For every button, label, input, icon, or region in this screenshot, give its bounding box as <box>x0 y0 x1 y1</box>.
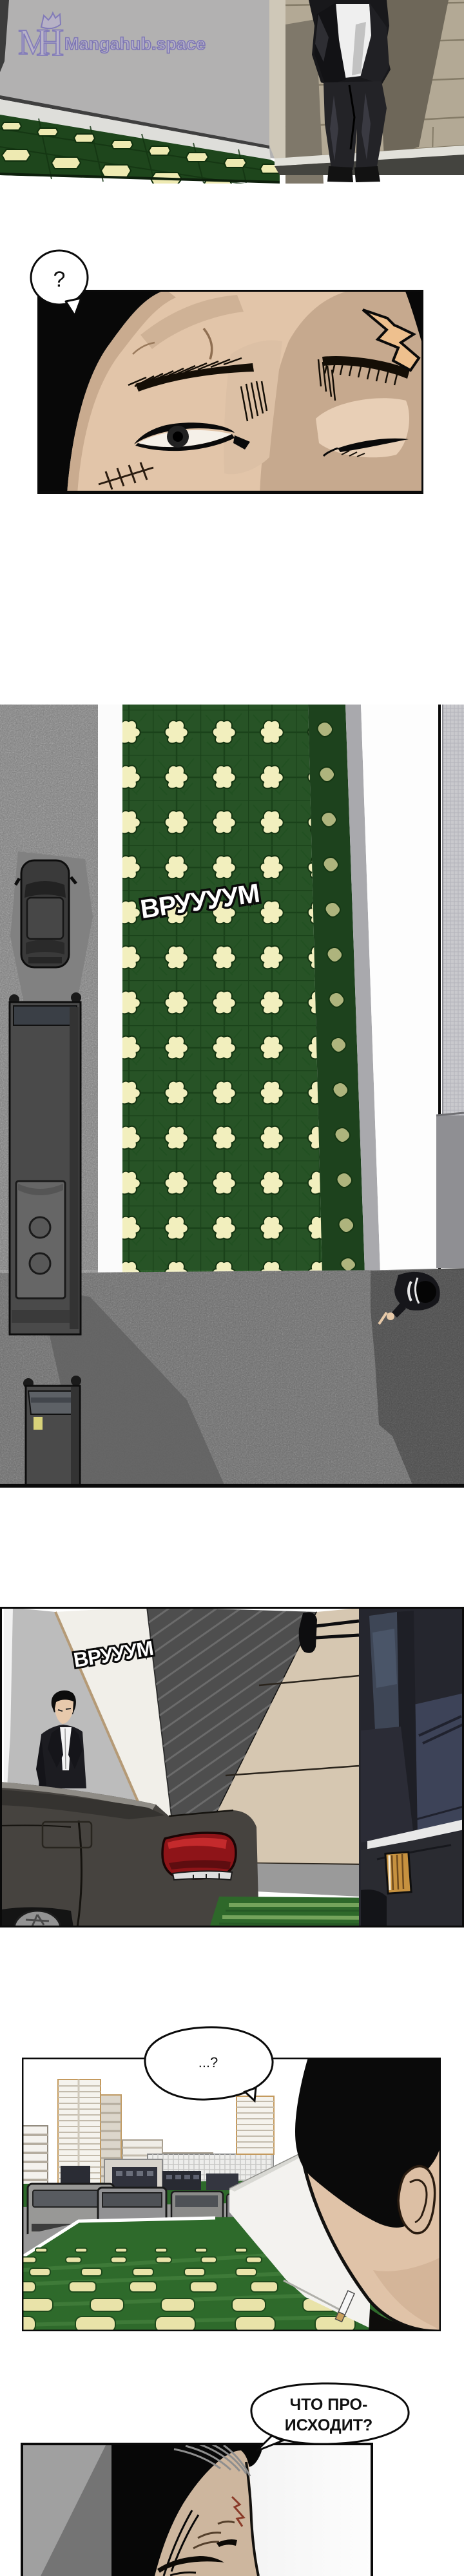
svg-text:ЧТО ПРО-: ЧТО ПРО- <box>290 2396 368 2414</box>
svg-text:Mangahub.space: Mangahub.space <box>64 34 206 53</box>
svg-text:ИСХОДИТ?: ИСХОДИТ? <box>285 2416 373 2434</box>
svg-text:...?: ...? <box>198 2054 218 2070</box>
svg-text:?: ? <box>53 267 66 292</box>
